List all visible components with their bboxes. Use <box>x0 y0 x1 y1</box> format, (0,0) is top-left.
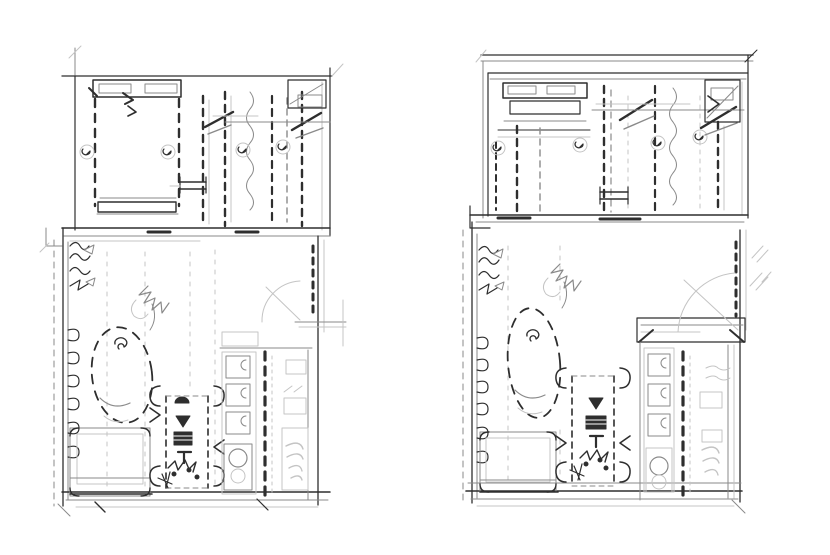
sketch-stroke <box>257 499 268 510</box>
sketch-stroke <box>695 134 703 140</box>
centerpiece <box>174 432 192 445</box>
sketch-stroke <box>661 358 666 368</box>
sketch-stroke <box>290 84 323 104</box>
sketch-stroke <box>241 388 246 398</box>
sketch-stroke <box>84 245 95 286</box>
sketch-stroke <box>470 206 490 228</box>
window-hook <box>477 403 488 415</box>
sketch-stroke <box>661 388 666 398</box>
scatter-scribble <box>580 450 608 462</box>
pillow <box>99 84 131 93</box>
coil-glyph <box>286 443 303 480</box>
sketch-stroke <box>652 475 666 489</box>
sofa <box>70 428 150 496</box>
sketch-stroke <box>584 462 588 466</box>
pillow <box>508 86 536 94</box>
chair <box>620 436 630 450</box>
bed-headboard <box>93 80 181 97</box>
sketch-stroke <box>575 142 583 148</box>
sketch-stroke <box>705 123 737 135</box>
sketch-stroke <box>241 360 246 370</box>
sketch-stroke <box>100 398 130 406</box>
sketch-stroke <box>661 418 666 428</box>
chair <box>620 368 630 388</box>
sketch-stroke <box>172 472 176 476</box>
window-hook <box>68 352 79 364</box>
sketch-stroke <box>123 93 133 104</box>
chair <box>620 462 630 482</box>
sketch-stroke <box>527 330 539 341</box>
sketch-stroke <box>284 398 306 414</box>
counter <box>222 352 256 494</box>
corner-overshoot <box>745 50 757 62</box>
sketch-stroke <box>518 408 542 414</box>
cabinet-front <box>226 412 250 434</box>
sketch-stroke <box>493 249 504 290</box>
sketch-stroke <box>163 149 171 155</box>
sketch-stroke <box>296 128 323 138</box>
sketch-stroke <box>278 144 286 150</box>
chair <box>150 408 160 422</box>
rug-oval <box>86 324 157 427</box>
cabinet-front <box>226 356 250 378</box>
door-leaf <box>266 287 300 320</box>
sketch-stroke <box>231 469 245 483</box>
rug-oval <box>503 306 564 420</box>
sketch-stroke <box>40 243 49 252</box>
bed <box>510 101 580 114</box>
sink-counter <box>646 448 672 492</box>
sketch-stroke <box>195 475 199 479</box>
notes-scribble <box>706 366 730 380</box>
corner-overshoot <box>332 64 343 76</box>
sketch-stroke <box>286 360 306 374</box>
chair <box>556 462 566 482</box>
sketch-stroke <box>476 50 486 62</box>
window-hook <box>477 381 488 393</box>
sketch-stroke <box>598 458 602 462</box>
entry-scribble <box>479 247 499 279</box>
centerpiece <box>586 416 606 429</box>
cabinet <box>222 332 258 346</box>
window-hook <box>477 337 488 349</box>
scatter-scribble <box>168 460 196 472</box>
sink <box>650 457 668 475</box>
entry-scribble <box>70 243 90 275</box>
curtain-squiggle <box>670 88 677 205</box>
sink <box>229 449 247 467</box>
chair <box>150 466 160 486</box>
sketch-stroke <box>604 466 608 470</box>
pillow <box>145 84 177 93</box>
appliance <box>282 428 308 490</box>
window-hook <box>68 329 79 341</box>
sketch-stroke <box>515 390 545 398</box>
window-hook <box>68 375 79 387</box>
cabinet-front <box>648 414 670 436</box>
sketch-stroke <box>238 147 246 153</box>
pillow <box>547 86 575 94</box>
floor-plan-right <box>463 50 771 513</box>
sketch-stroke <box>493 145 501 151</box>
window-hook <box>68 398 79 410</box>
cabinet-front <box>226 384 250 406</box>
chair <box>556 436 566 450</box>
coil-glyph <box>702 447 719 475</box>
sketch-stroke <box>58 504 70 516</box>
window-hook <box>477 359 488 371</box>
cabinet-front <box>648 384 670 406</box>
hatch-marks <box>750 246 771 290</box>
sketch-stroke <box>70 428 150 496</box>
centerpiece <box>589 398 603 409</box>
chair <box>214 386 224 406</box>
sketch-stroke <box>700 392 722 408</box>
sketch-stroke <box>77 434 143 484</box>
sketch-stroke <box>208 125 231 134</box>
bed-foot <box>98 202 176 212</box>
centerpiece <box>176 416 190 427</box>
bed-headboard <box>503 83 587 98</box>
sketch-stroke <box>486 438 550 482</box>
sketch-stroke <box>284 386 302 392</box>
door-leaf <box>684 280 738 330</box>
sketch-stroke <box>479 284 497 294</box>
floor-plans-svg <box>0 0 830 555</box>
sketch-stroke <box>730 330 744 342</box>
sketch-stroke <box>115 338 127 349</box>
cabinet-front <box>648 354 670 376</box>
centerpiece <box>175 397 189 403</box>
sketch-stroke <box>241 416 246 426</box>
sketch-stroke <box>702 430 722 442</box>
sketch-stroke <box>187 468 191 472</box>
sketch-stroke <box>70 280 88 290</box>
sketch-stroke <box>82 149 90 155</box>
chair <box>214 466 224 486</box>
floor-plan-left <box>40 46 346 516</box>
sketch-stroke <box>128 106 136 116</box>
floor-plan-sheet <box>0 0 830 555</box>
